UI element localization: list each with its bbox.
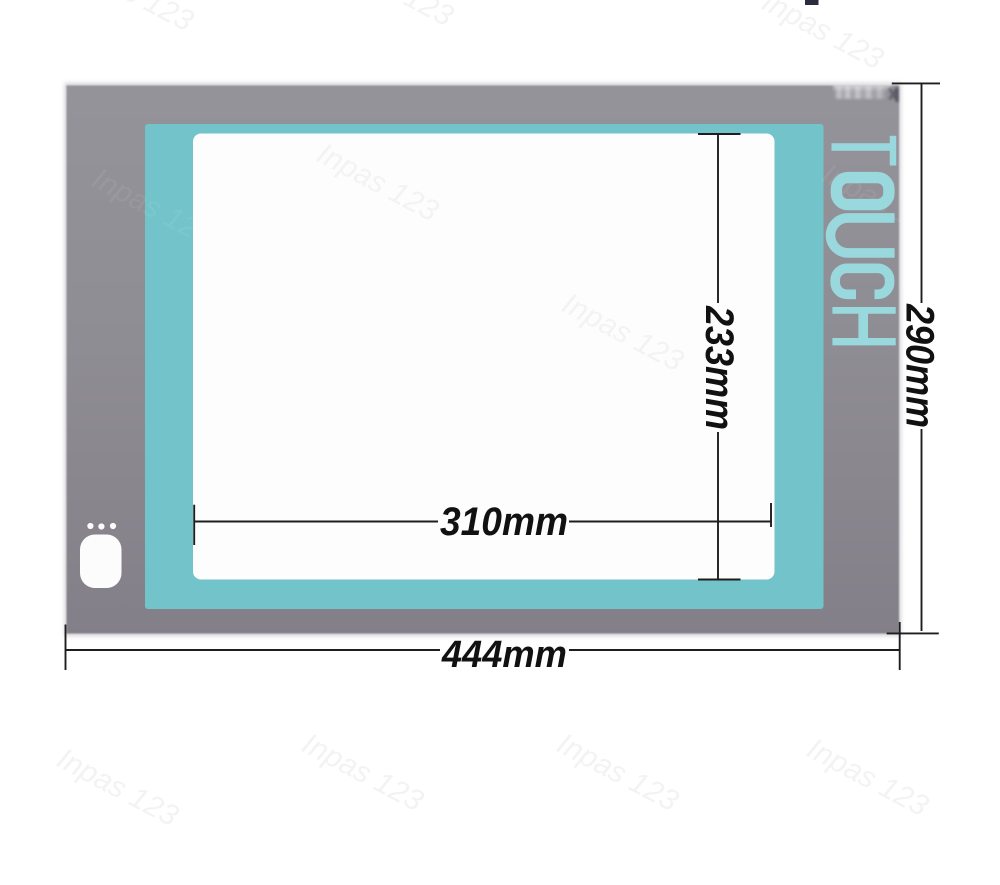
svg-text:233mm: 233mm <box>697 305 741 430</box>
svg-text:290mm: 290mm <box>898 303 942 428</box>
svg-text:444mm: 444mm <box>441 634 567 676</box>
svg-text:310mm: 310mm <box>440 500 568 544</box>
